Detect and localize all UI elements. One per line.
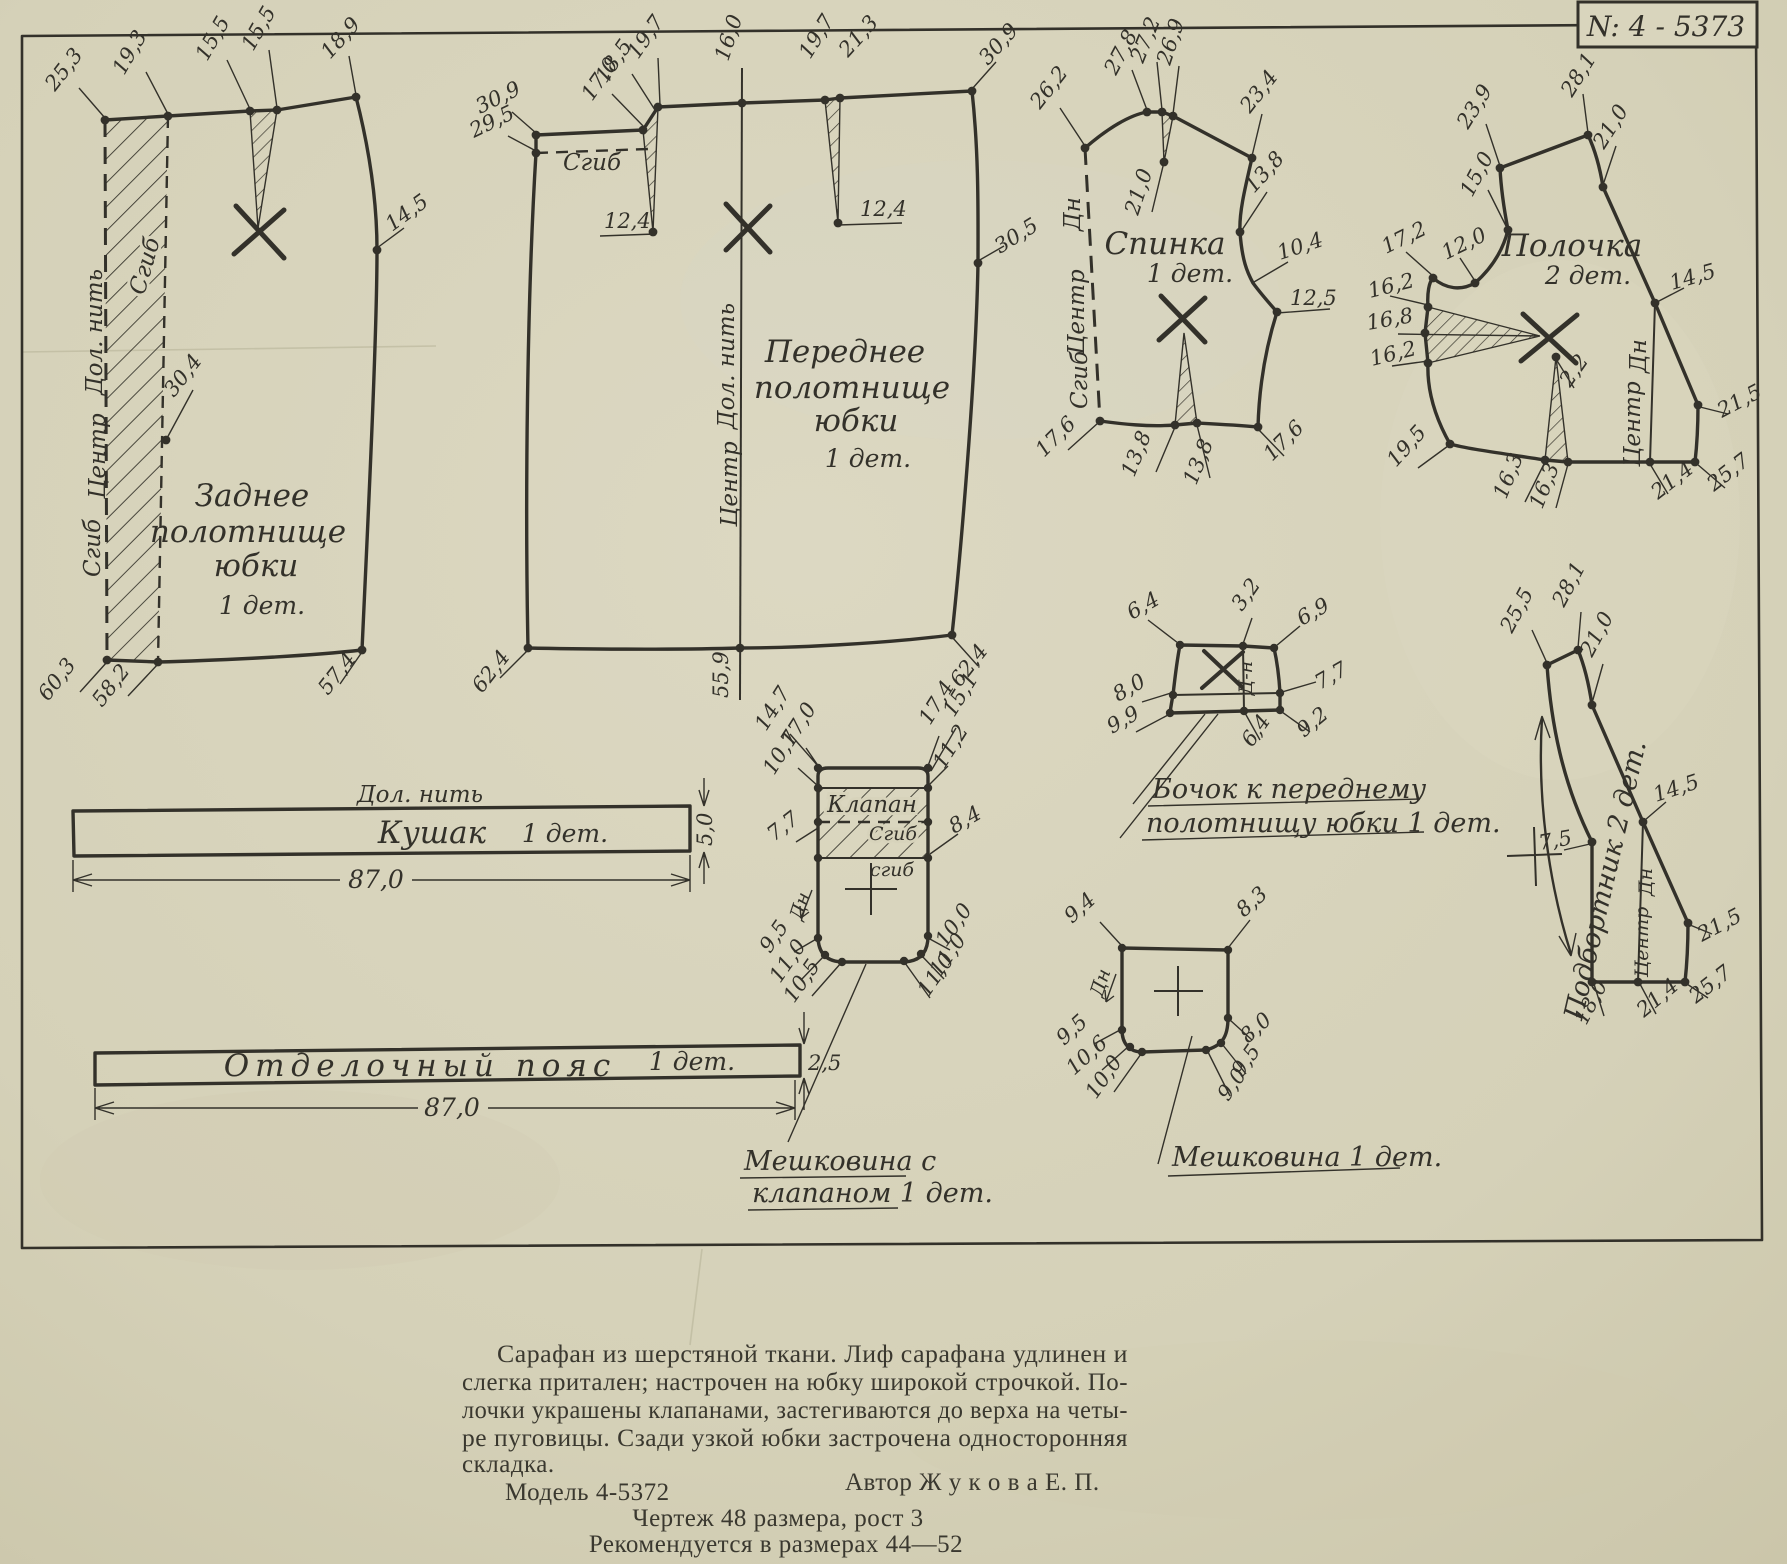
- piece-caption: Мешковина 1 дет.: [1171, 1142, 1442, 1173]
- fold-label: Сгиб: [80, 518, 106, 577]
- grain-label: Дол. нить: [714, 303, 740, 430]
- piece-title: Заднее: [195, 478, 310, 514]
- size-note: Чертеж 48 размера, рост 3: [632, 1505, 923, 1532]
- measurement-label: 55,9: [709, 651, 733, 698]
- fold-label: Сгиб: [869, 823, 917, 845]
- sheet-number: N: 4 - 5373: [1586, 10, 1745, 43]
- author-credit: Автор Ж у к о в а Е. П.: [845, 1469, 1100, 1496]
- grain-label: Дн: [1635, 868, 1657, 897]
- fold-label: Сгиб: [563, 150, 622, 176]
- piece-title: полотнище: [754, 370, 950, 406]
- measurement-label: 12,4: [604, 209, 651, 233]
- grain-label: Д-н: [1235, 661, 1257, 696]
- description-line: слегка притален; настрочен на юбку широк…: [462, 1369, 1128, 1396]
- piece-title: Переднее: [764, 334, 925, 370]
- grain-label: Дол. нить: [82, 269, 108, 396]
- width-value: 2,5: [807, 1051, 841, 1075]
- grain-label: Дн: [1626, 339, 1652, 374]
- piece-title: Полочка: [1501, 228, 1642, 264]
- piece-count: 1 дет.: [1147, 259, 1233, 288]
- description-line: лочки украшены клапанами, застегиваются …: [462, 1397, 1128, 1424]
- measurement-label: 12,4: [860, 197, 907, 221]
- description-line: складка.: [462, 1451, 555, 1478]
- piece-caption: Мешковина с: [743, 1146, 936, 1177]
- center-label: Центр: [1064, 269, 1090, 356]
- piece-title: Спинка: [1104, 226, 1225, 262]
- description-line: Сарафан из шерстяной ткани. Лиф сарафана…: [497, 1341, 1128, 1368]
- model-number: Модель 4-5372: [505, 1479, 670, 1506]
- center-label: Центр: [85, 413, 111, 500]
- piece-title: юбки: [214, 548, 299, 584]
- piece-title: Отделочный пояс: [224, 1048, 617, 1084]
- piece-count: 1 дет.: [522, 819, 608, 848]
- piece-title: юбки: [814, 403, 899, 439]
- piece-count: 1 дет.: [825, 444, 911, 473]
- piece-title: Кушак: [377, 815, 487, 851]
- measurement-label: 12,5: [1290, 286, 1337, 310]
- center-label: Центр: [1631, 907, 1653, 979]
- pattern-drawing: N: 4 - 5373 25,3 19,3 15,5 15,5 18,9 14,…: [0, 0, 1787, 1564]
- width-value: 5,0: [693, 813, 717, 846]
- sheet-number-stamp: N: 4 - 5373: [1578, 2, 1757, 47]
- fold-label: Сгиб: [1067, 350, 1093, 409]
- size-note: Рекомендуется в размерах 44—52: [589, 1531, 963, 1558]
- center-label: Центр: [717, 441, 743, 528]
- description-line: ре пуговицы. Сзади узкой юбки застрочена…: [462, 1425, 1128, 1452]
- length-value: 87,0: [348, 865, 404, 894]
- piece-caption: клапаном 1 дет.: [752, 1178, 993, 1209]
- sewing-pattern-sheet: N: 4 - 5373 25,3 19,3 15,5 15,5 18,9 14,…: [0, 0, 1787, 1564]
- piece-count: 1 дет.: [649, 1047, 735, 1076]
- grain-label: Дол. нить: [356, 782, 483, 808]
- piece-count: 1 дет.: [219, 591, 305, 620]
- grain-label: Дн: [1060, 197, 1086, 232]
- length-value: 87,0: [424, 1093, 480, 1122]
- piece-count: 2 дет.: [1544, 261, 1631, 290]
- piece-title: полотнище: [150, 514, 346, 550]
- fold-label: сгиб: [870, 859, 914, 881]
- center-label: Центр: [1620, 381, 1646, 468]
- flap-label: Клапан: [826, 792, 917, 818]
